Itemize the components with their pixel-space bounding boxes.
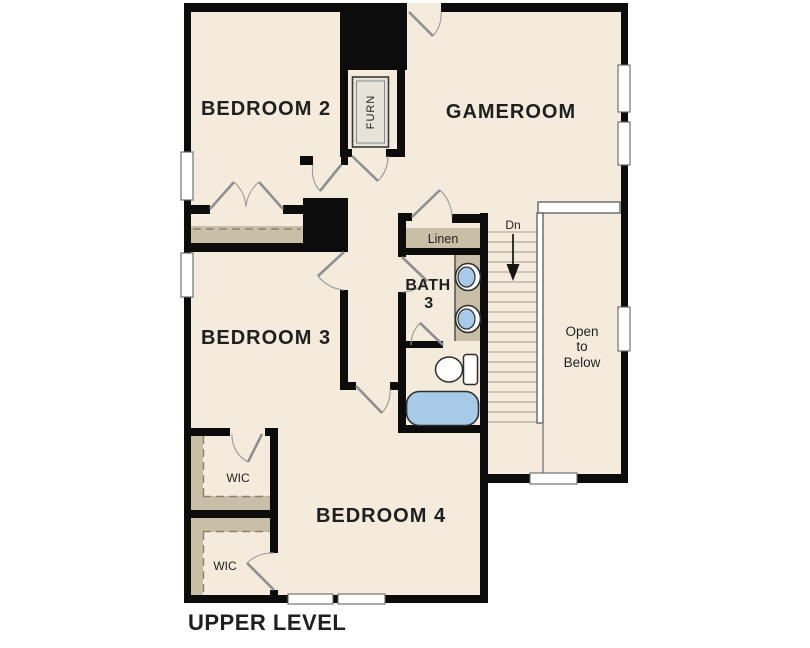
stair-rail <box>537 213 543 423</box>
floor-plan-drawing: BEDROOM 2 GAMEROOM BEDROOM 3 BEDROOM 4 B… <box>0 0 810 648</box>
sink-icon <box>456 306 481 333</box>
room-label-bedroom-4: BEDROOM 4 <box>316 505 446 527</box>
room-label-bedroom-2: BEDROOM 2 <box>201 98 331 120</box>
floor-plan-page: BEDROOM 2 GAMEROOM BEDROOM 3 BEDROOM 4 B… <box>0 0 810 648</box>
room-label-gameroom: GAMEROOM <box>446 101 576 123</box>
label-open-to-below: Open <box>565 324 598 339</box>
toilet-icon <box>436 355 478 385</box>
wic1-shelf <box>191 496 270 510</box>
window <box>181 253 193 297</box>
window <box>181 152 193 200</box>
page-title: UPPER LEVEL <box>188 610 346 635</box>
label-wic-upper: WIC <box>226 471 250 485</box>
sink-icon <box>456 264 481 291</box>
window <box>618 65 630 112</box>
open-below-half-wall <box>538 202 620 213</box>
label-open-to-below: Below <box>564 355 601 370</box>
wic2-shelf <box>191 518 203 595</box>
label-wic-lower: WIC <box>213 559 237 573</box>
window <box>530 473 577 484</box>
label-linen-closet: Linen <box>428 232 459 246</box>
window <box>618 122 630 165</box>
label-stairs-down: Dn <box>505 218 520 232</box>
label-furnace: FURN <box>365 95 377 130</box>
room-label-bedroom-3: BEDROOM 3 <box>201 327 331 349</box>
room-label-bath-3: BATH <box>405 277 450 294</box>
label-open-to-below: to <box>576 339 587 354</box>
bathtub-icon <box>407 392 479 426</box>
window <box>618 307 630 351</box>
window <box>288 594 333 604</box>
window <box>338 594 385 604</box>
room-label-bath-3-number: 3 <box>424 295 433 312</box>
